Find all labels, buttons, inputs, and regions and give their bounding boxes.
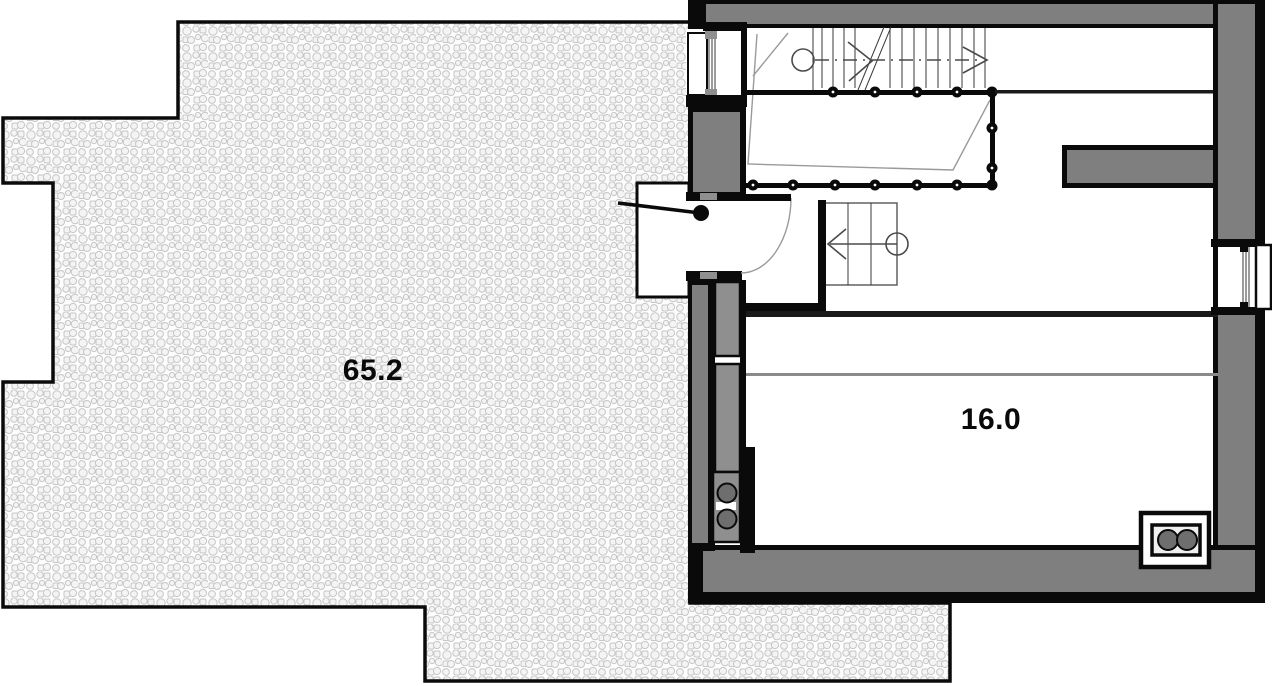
vestibule: [742, 200, 826, 312]
sink-basin-bottom: [718, 510, 737, 529]
vestibule-right-wall: [818, 200, 826, 312]
main-staircase: [792, 27, 987, 90]
door-jamb-block-top: [700, 193, 717, 200]
right-window: [1211, 239, 1271, 315]
small-staircase: [823, 203, 908, 285]
railing-posts: [748, 87, 998, 191]
right-window-outer-sash: [1256, 245, 1271, 309]
left-window: [686, 22, 747, 107]
vestibule-bottom-wall: [742, 303, 826, 311]
entrance-porch: [637, 183, 689, 297]
right-window-cap-top: [1211, 239, 1255, 247]
stair-break-line: [858, 27, 891, 90]
left-window-cap-bottom: [686, 95, 747, 107]
landing-edge-line: [995, 90, 1213, 94]
door-jamb-block-bottom: [700, 272, 717, 279]
left-wall-mid-poche: [693, 112, 740, 193]
right-window-cap-bottom: [1211, 307, 1255, 315]
floor-plan-canvas: 65.2: [0, 0, 1272, 686]
floor-plan-svg: 65.2: [0, 0, 1272, 686]
entrance: [618, 183, 791, 297]
stair-treads: [813, 28, 985, 90]
partition-line: [740, 311, 1218, 317]
railing-post-holes: [752, 91, 994, 187]
terrace-area-label: 65.2: [343, 354, 403, 387]
right-window-stop-bottom: [1240, 302, 1248, 310]
walkline-mid-arrow: [848, 42, 872, 81]
door-leaf: [740, 194, 791, 201]
stove-burner-left: [1158, 530, 1178, 550]
top-wall-poche: [693, 4, 1255, 24]
door-swing-arc: [741, 198, 791, 273]
room-area-label: 16.0: [961, 403, 1021, 436]
bedroom: 16.0: [740, 311, 1218, 436]
ceiling-height-line: [745, 373, 1218, 376]
left-wall-lower-poche: [692, 285, 708, 543]
void-slope-outline: [748, 34, 990, 170]
left-window-outer-sash: [688, 33, 707, 95]
void-slope-line2: [753, 33, 788, 76]
cabinet-upper: [715, 282, 740, 356]
entrance-leader-dot: [693, 205, 709, 221]
cabinet-lower: [715, 364, 740, 472]
stove: [1141, 513, 1209, 567]
kitchen-counter: [713, 280, 755, 553]
walkline-start-circle: [792, 49, 814, 71]
wall-stub-poche: [1067, 150, 1213, 183]
left-window-cap-top: [703, 22, 747, 31]
right-window-stop-top: [1240, 244, 1248, 252]
stove-burner-right: [1177, 530, 1197, 550]
sink-basin-top: [718, 484, 737, 503]
chimney-bar: [740, 447, 755, 553]
